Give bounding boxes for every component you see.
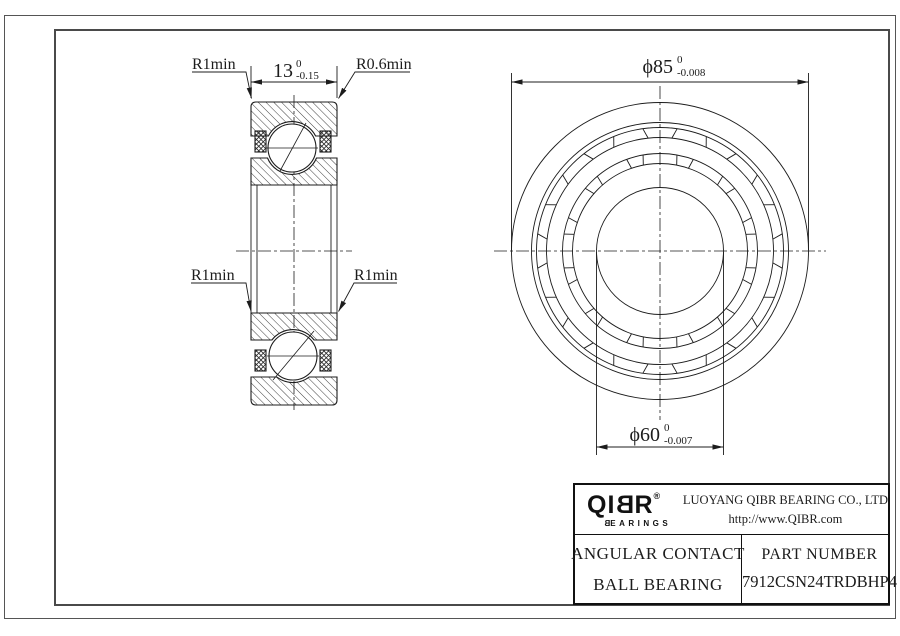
cage-pocket-edge: [672, 129, 677, 138]
leader-r1min-right: [339, 283, 398, 312]
cage-pocket-edge: [597, 317, 602, 326]
label-r1min-right: R1min: [354, 267, 398, 284]
cage-pocket-edge: [627, 159, 632, 168]
cage-pocket-edge: [568, 218, 577, 223]
cage-section-bottom-right: [320, 350, 331, 371]
section-view: [236, 95, 352, 410]
part-number-label: PART NUMBER: [761, 546, 877, 564]
part-number-cell: PART NUMBER 7912CSN24TRDBHP4: [742, 535, 897, 603]
cage-pocket-edge: [643, 129, 648, 138]
cage-pocket-edge: [563, 175, 568, 184]
company-info: LUOYANG QIBR BEARING CO., LTD http://www…: [683, 493, 888, 527]
cage-pocket-edge: [585, 188, 594, 193]
cage-pocket-edge: [568, 279, 577, 284]
leader-r1min-left: [191, 283, 251, 312]
cage-pocket-edge: [643, 364, 648, 373]
cage-pocket-edge: [563, 318, 568, 327]
cage-pocket-edge: [585, 308, 594, 313]
front-view-centerlines: [494, 86, 826, 420]
title-block-body-row: ANGULAR CONTACT BALL BEARING PART NUMBER…: [575, 535, 888, 603]
brand-wordmark: QIBR®: [587, 492, 683, 518]
cage-pocket-edge: [773, 263, 782, 268]
title-block-header-row: QIBR® BEARINGS LUOYANG QIBR BEARING CO.,…: [575, 485, 888, 535]
cage-section-top-left: [255, 131, 266, 152]
width-dim-tol-lower: -0.15: [296, 70, 319, 82]
od-dim-tol-lower: -0.008: [677, 67, 706, 79]
label-r1min-left: R1min: [191, 267, 235, 284]
drawing-sheet: R1min R0.6min R1min R1min 13 0 -0.15 ϕ85…: [0, 0, 900, 636]
cage-pocket-edge: [688, 159, 693, 168]
product-description: ANGULAR CONTACT BALL BEARING: [575, 535, 742, 603]
brand-logo: QIBR® BEARINGS: [575, 492, 683, 528]
cage-pocket-edge: [627, 334, 632, 343]
leader-r1min-top: [192, 72, 252, 99]
cage-pocket-edge: [584, 154, 593, 159]
cage-pocket-edge: [672, 364, 677, 373]
product-line-2: BALL BEARING: [593, 575, 723, 595]
bore-dim-tol-lower: -0.007: [664, 435, 693, 447]
cage-pocket-edge: [752, 318, 757, 327]
mirrored-b-glyph: B: [601, 520, 610, 528]
cage-pocket-edge: [726, 188, 735, 193]
cage-pocket-edge: [727, 154, 736, 159]
cage-pocket-edge: [688, 334, 693, 343]
bore-dim-tol-upper: 0: [664, 422, 670, 434]
label-r06min: R0.6min: [356, 56, 412, 73]
registered-mark: ®: [654, 491, 661, 501]
cage-pocket-edge: [726, 308, 735, 313]
part-number-value: 7912CSN24TRDBHP4: [742, 572, 897, 592]
cage-pocket-edge: [717, 176, 722, 185]
label-r1min-top: R1min: [192, 56, 236, 73]
cage-pocket-edge: [727, 343, 736, 348]
cage-section-top-right: [320, 131, 331, 152]
cage-pocket-edge: [752, 175, 757, 184]
leader-r06min: [339, 72, 411, 99]
product-line-1: ANGULAR CONTACT: [571, 544, 745, 564]
cage-section-bottom-left: [255, 350, 266, 371]
cage-pocket-edge: [538, 263, 547, 268]
width-dim-tol-upper: 0: [296, 58, 302, 70]
cage-pocket-edge: [743, 279, 752, 284]
cage-pocket-edge: [743, 218, 752, 223]
title-block: QIBR® BEARINGS LUOYANG QIBR BEARING CO.,…: [573, 483, 890, 605]
cage-pocket-edge: [773, 234, 782, 239]
cage-pocket-edge: [584, 343, 593, 348]
mirrored-b-glyph: B: [615, 493, 634, 518]
bore-dim-value: ϕ60: [629, 424, 660, 446]
company-url: http://www.QIBR.com: [729, 512, 843, 527]
cage-pocket-edge: [538, 234, 547, 239]
cage-pocket-edge: [597, 176, 602, 185]
width-dim-value: 13: [273, 60, 293, 82]
od-dim-value: ϕ85: [642, 56, 673, 78]
od-dim-tol-upper: 0: [677, 54, 683, 66]
brand-subtitle: BEARINGS: [601, 520, 683, 528]
cage-pocket-edge: [717, 317, 722, 326]
company-name: LUOYANG QIBR BEARING CO., LTD: [683, 493, 888, 508]
